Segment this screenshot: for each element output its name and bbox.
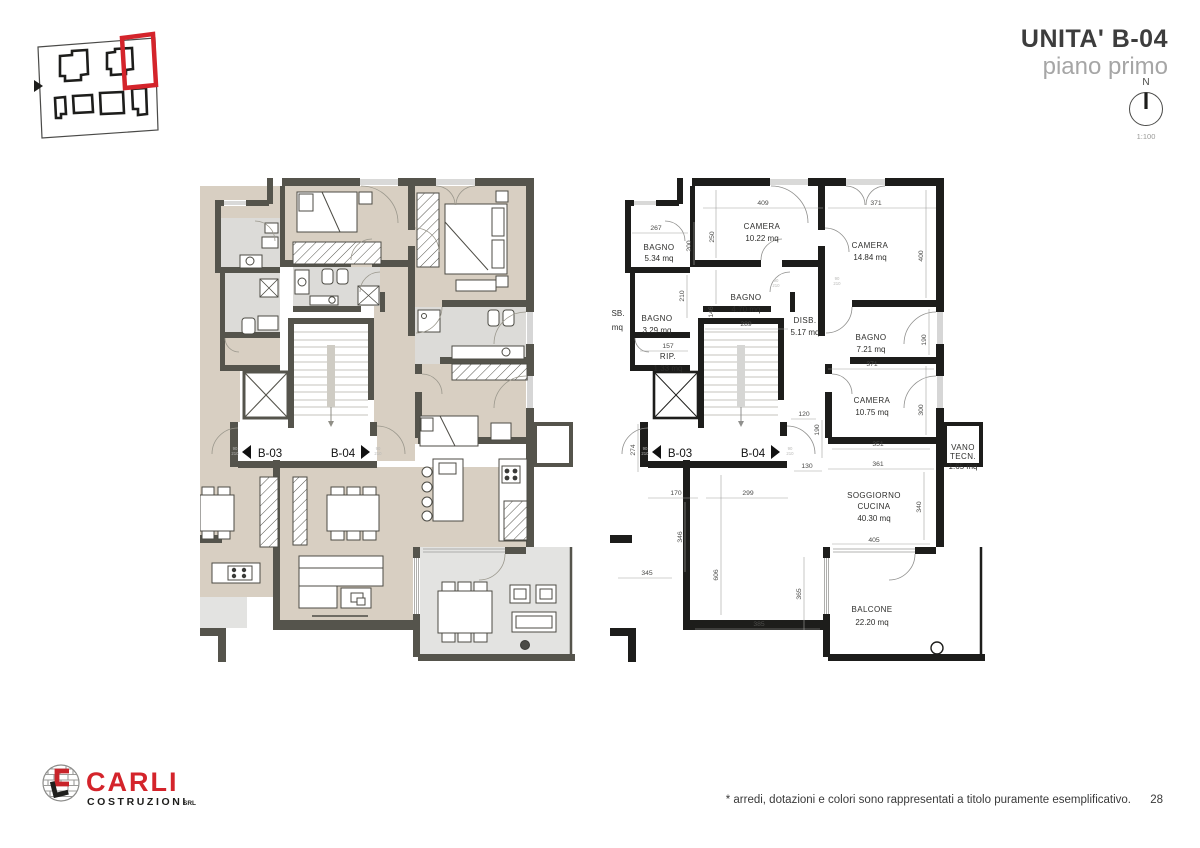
room-name: TECN. [950, 452, 976, 461]
brand-suffix: SRL [183, 800, 196, 807]
dim-label: 190 [814, 424, 821, 436]
dim-label: 210 [679, 290, 686, 302]
unit-label-b04: B-04 [331, 448, 356, 460]
brand-name: CARLI [86, 767, 179, 797]
north-needle [1144, 93, 1147, 110]
room-area: 1.65 mq [949, 462, 978, 471]
door-tag: 210 [786, 451, 794, 456]
dining-table-icon [327, 487, 379, 540]
dim-label: 371 [866, 361, 878, 368]
dim-label: 361 [872, 461, 884, 468]
dim-label: 200 [686, 240, 693, 252]
room-labels: BAGNO 5.34 mq CAMERA 10.22 mq CAMERA 14.… [610, 222, 977, 627]
dim-label: 365 [796, 588, 803, 600]
dim-label: 146 [708, 306, 715, 318]
balcony-column [931, 642, 943, 654]
wardrobe-icon [293, 477, 307, 545]
arrow-left-icon [652, 445, 661, 459]
unit-label-b04: B-04 [741, 448, 766, 460]
door-tag: 210 [641, 451, 649, 456]
room-name: CAMERA [854, 396, 891, 405]
north-label: N [1142, 77, 1149, 88]
bed-single-icon [297, 192, 357, 232]
wardrobe-icon [293, 242, 381, 264]
wardrobe-icon [260, 477, 278, 547]
company-logo: CARLI COSTRUZIONI SRL [40, 758, 240, 818]
arrow-right-icon [771, 445, 780, 459]
room-area: 7.21 mq [857, 345, 886, 354]
room-name: VANO [951, 443, 975, 452]
dim-label: 409 [757, 200, 769, 207]
room-name: CAMERA [744, 222, 781, 231]
dim-label: 170 [670, 490, 682, 497]
room-area: 5.34 mq [645, 254, 674, 263]
room-area: 40.30 mq [857, 514, 890, 523]
vano-tecnico-box [535, 424, 571, 465]
door-tag: 210 [374, 451, 382, 456]
room-area: 10.75 mq [855, 408, 888, 417]
door-tag: 210 [772, 283, 780, 288]
room-area: 3.29 mq [643, 326, 672, 335]
room-name: CAMERA [852, 241, 889, 250]
dim-label: 340 [916, 501, 923, 513]
dim-label: 289 [740, 321, 752, 328]
room-area: 5.17 mq [791, 328, 820, 337]
room-area: 10.22 mq [745, 234, 778, 243]
room-name: CUCINA [857, 502, 890, 511]
clipped-room-area: 0 mq [610, 323, 623, 332]
dim-label: 405 [868, 537, 880, 544]
staircase [704, 332, 778, 427]
room-name: BAGNO [856, 333, 887, 342]
dim-label: 274 [630, 444, 637, 456]
dim-label: 299 [742, 490, 754, 497]
room-name: BAGNO [731, 293, 762, 302]
page-number: 28 [1150, 794, 1163, 806]
room-area: 14.84 mq [853, 253, 886, 262]
dim-label: 345 [641, 570, 653, 577]
dim-label: 346 [677, 531, 684, 543]
brand-sub: COSTRUZIONI [87, 796, 188, 808]
room-name: SOGGIORNO [847, 491, 901, 500]
disclaimer-text: * arredi, dotazioni e colori sono rappre… [726, 794, 1131, 806]
clipped-room-name: SB. [612, 309, 625, 318]
dim-label: 385 [753, 621, 765, 628]
technical-plan: BAGNO 5.34 mq CAMERA 10.22 mq CAMERA 14.… [610, 160, 1000, 700]
unit-label-b03: B-03 [668, 448, 692, 460]
unit-label-b03: B-03 [258, 448, 282, 460]
dim-label: 300 [918, 404, 925, 416]
room-name: BAGNO [644, 243, 675, 252]
dim-label: 351 [872, 441, 884, 448]
door-tag: 210 [833, 281, 841, 286]
dim-label: 250 [709, 231, 716, 243]
plan-sheet-page: UNITA' B-04 piano primo N 1:100 [0, 0, 1200, 848]
dim-label: 371 [870, 200, 882, 207]
dim-label: 130 [801, 463, 813, 470]
room-area: 1.33 mq [654, 364, 683, 373]
key-plan [25, 25, 175, 150]
dim-label: 120 [798, 411, 810, 418]
door-tag: 210 [231, 451, 239, 456]
room-area: 22.20 mq [855, 618, 888, 627]
sofa-icon [299, 556, 383, 616]
room-name: BAGNO [642, 314, 673, 323]
dim-label: 400 [918, 250, 925, 262]
room-name: BALCONE [851, 605, 892, 614]
wardrobe-icon [417, 193, 439, 267]
page-title: UNITA' B-04 [1021, 26, 1168, 54]
room-name: DISB. [794, 316, 817, 325]
north-arrow: N 1:100 [1120, 72, 1175, 144]
dim-label: 606 [713, 569, 720, 581]
room-name: RIP. [660, 352, 676, 361]
dim-label: 157 [662, 343, 674, 350]
dim-label: 190 [921, 334, 928, 346]
scale-label: 1:100 [1137, 132, 1156, 141]
dim-label: 267 [650, 225, 662, 232]
furnished-plan: B-03 B-04 90 210 90 210 [200, 160, 590, 700]
room-area: 4.70 mq [732, 305, 761, 314]
nightstand-icon [359, 192, 372, 204]
